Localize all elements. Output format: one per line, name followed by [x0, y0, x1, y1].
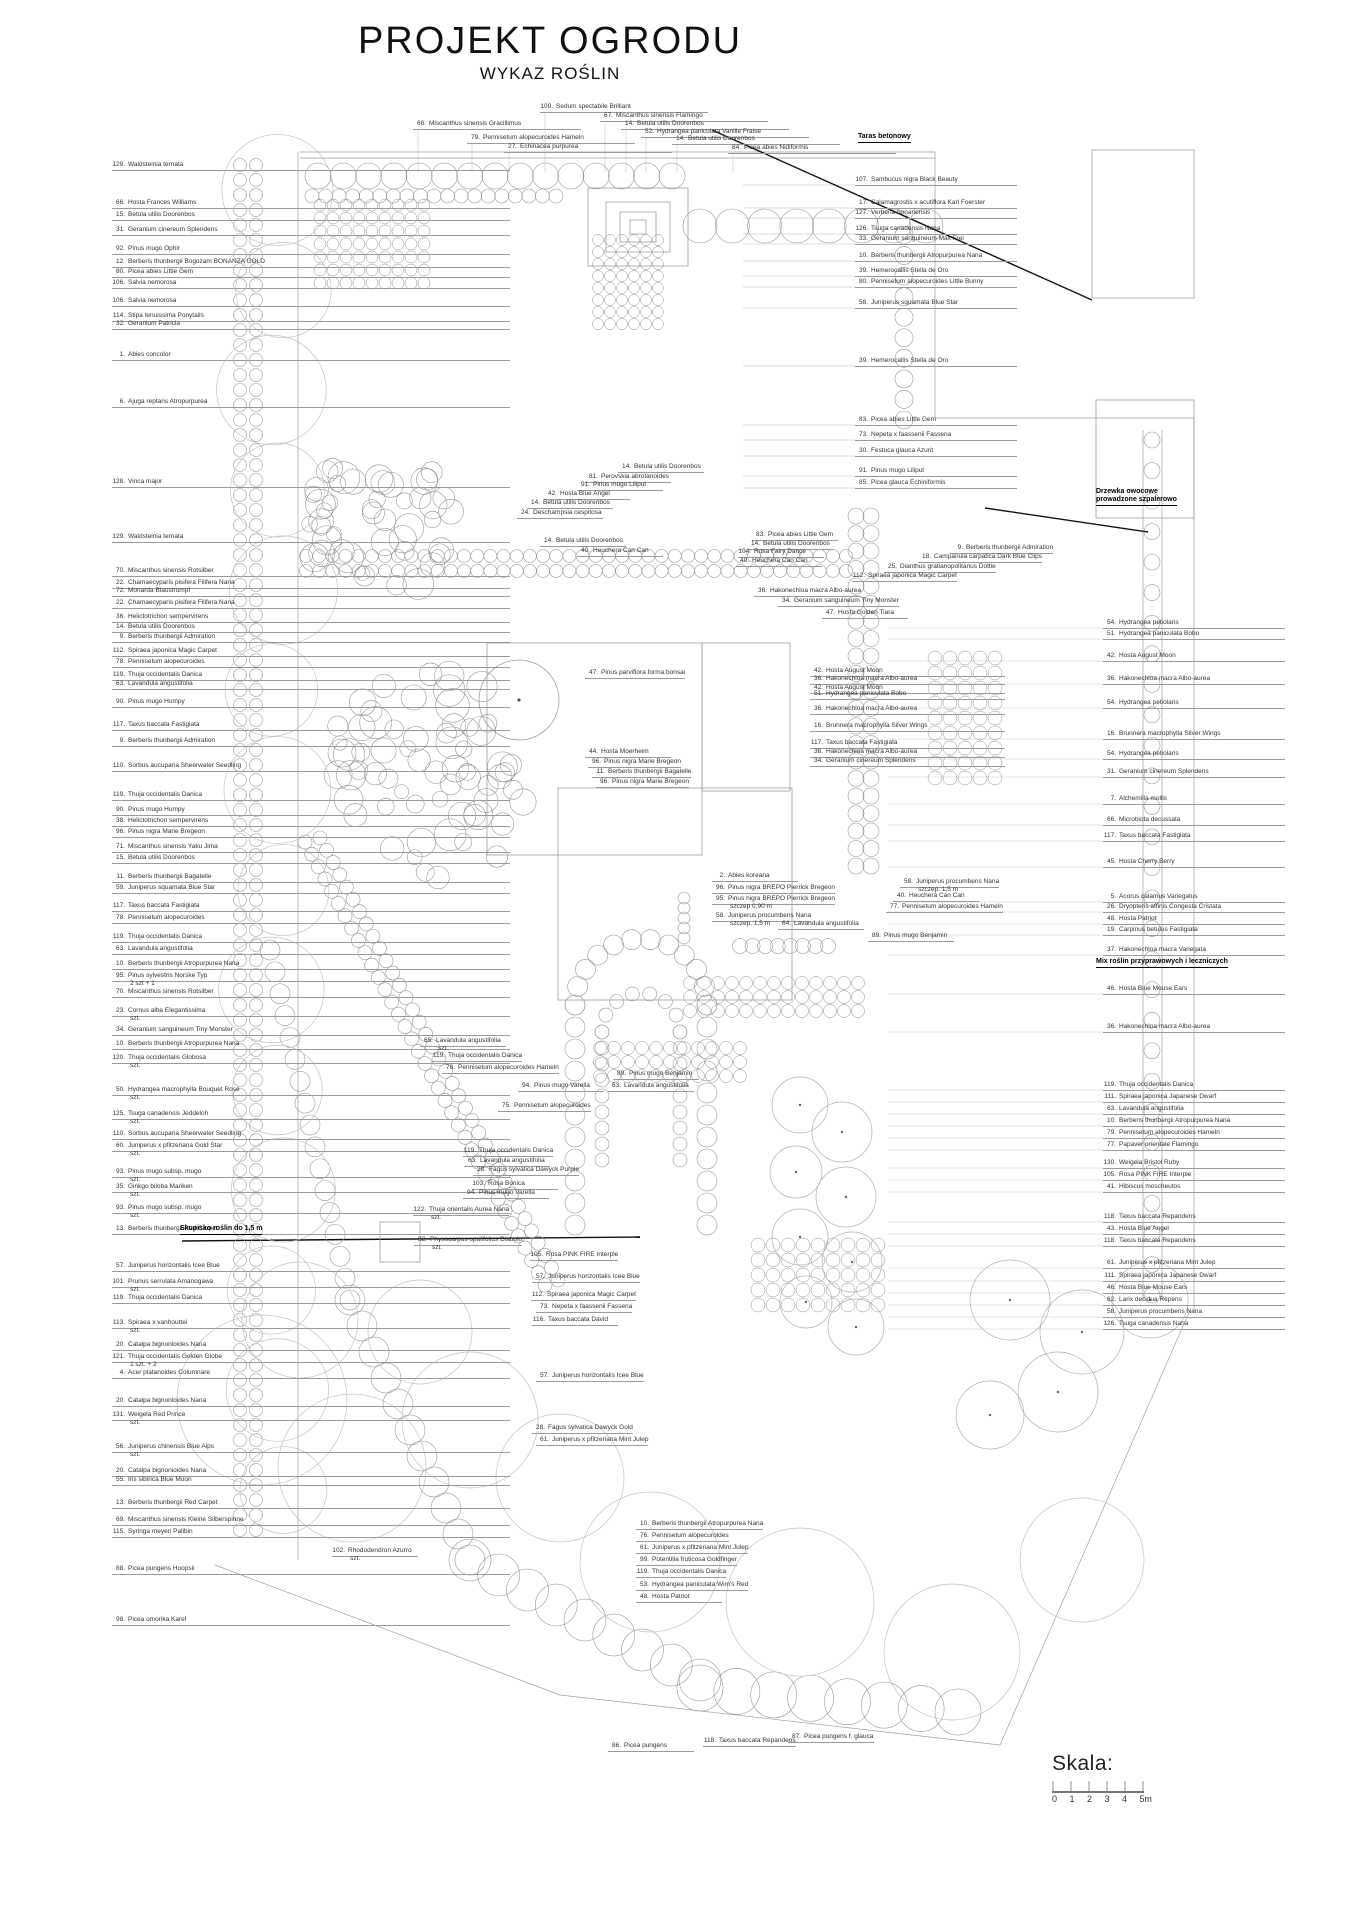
- plant-name: Pinus mugo Liliput: [593, 481, 646, 488]
- plant-number: 60.: [112, 1143, 125, 1150]
- plant-name: Juniperus procumbens Nana: [728, 912, 811, 919]
- plant-name: Hosta Patriot: [1119, 915, 1157, 922]
- plant-number: 14.: [112, 624, 125, 631]
- plant-number: 31.: [112, 227, 125, 234]
- plant-label: 66.Hosta Frances Williams: [112, 200, 510, 209]
- plant-number: 96.: [588, 759, 601, 766]
- plant-name: Taxus baccata Fastigiata: [128, 902, 200, 909]
- plant-qty-note: szczep. 1,5 m: [730, 921, 770, 928]
- plant-label: 40.Heuchera Can Can: [893, 893, 979, 902]
- plant-label: 11.Berberis thunbergii Bagatelle: [112, 874, 510, 883]
- plant-name: Hydrangea paniculata Vanille Fraise: [657, 128, 761, 135]
- plant-number: 36.: [810, 676, 823, 683]
- plant-label: 35.Ginkgo biloba Marikenszt.: [112, 1184, 510, 1193]
- plant-label: 36.Hakonechloa macra Albo-aurea: [810, 706, 1005, 715]
- plant-number: 85.: [855, 480, 868, 487]
- plant-label: 83.Picea abies Little Gem: [855, 417, 1017, 426]
- plant-name: Berberis thunbergii Admiration: [128, 633, 215, 640]
- plant-label: 20.Catalpa bignonioides Nana: [112, 1342, 510, 1351]
- plant-label: 85.Picea glauca Echiniformis: [855, 480, 1017, 489]
- plant-label: 122.Thuja orientalis Aurea Nanaszt.: [413, 1207, 509, 1216]
- plant-number: 66.: [1103, 817, 1116, 824]
- plant-name: Picea pungens Hoopsii: [128, 1565, 195, 1572]
- plant-label: 2.Abies koreana: [712, 873, 798, 882]
- plant-qty-note: szt.: [130, 1119, 140, 1126]
- plant-name: Perovskia abrotanoides: [601, 473, 669, 480]
- plant-name: Pinus mugo subsp. mugo: [128, 1204, 201, 1211]
- scale-tick: [1106, 1781, 1108, 1791]
- plant-qty-note: szt.: [130, 1420, 140, 1427]
- plant-number: 63.: [608, 1083, 621, 1090]
- plant-qty-note: 2 szt + 1: [130, 981, 155, 988]
- plant-name: Miscanthus sinensis Kleine Silberspinne: [128, 1516, 244, 1523]
- plant-number: 10.: [112, 961, 125, 968]
- plant-number: 79.: [467, 135, 480, 142]
- plant-label: 55.Iris sibirica Blue Moon: [112, 1477, 510, 1486]
- plant-number: 117.: [1103, 833, 1116, 840]
- plant-number: 41.: [1103, 1184, 1116, 1191]
- plant-name: Taxus baccata Fastigiata: [1119, 832, 1191, 839]
- plant-name: Miscanthus sinensis Rotsilber: [128, 567, 214, 574]
- plant-name: Festuca glauca Azurit: [871, 447, 933, 454]
- plant-label: 65.Lavandula angustifoliaszt.: [420, 1038, 506, 1047]
- plant-name: Fagus sylvatica Dawyck Gold: [548, 1424, 633, 1431]
- plant-label: 36.Helictotrichon sempervirens: [112, 614, 510, 623]
- plant-name: Hydrangea petiolaris: [1119, 750, 1179, 757]
- plant-number: 79.: [1103, 1130, 1116, 1137]
- plan-annotation: Drzewka owocowe prowadzone szpalerowo: [1096, 488, 1177, 506]
- plant-name: Spiraea japonica Magic Carpet: [547, 1291, 636, 1298]
- plant-name: Betula utilis Doorenbos: [763, 540, 830, 547]
- plant-name: Brunnera macrophylla Silver Wings: [1119, 730, 1221, 737]
- plant-label: 126.Tsuga canadensis Nana: [1103, 1321, 1285, 1330]
- plant-name: Juniperus x pfitzeriana Gold Star: [128, 1142, 222, 1149]
- plant-number: 36.: [810, 706, 823, 713]
- plant-number: 112.: [852, 573, 865, 580]
- plant-number: 103.: [472, 1181, 485, 1188]
- plant-number: 51.: [1103, 631, 1116, 638]
- plant-number: 88.: [112, 1566, 125, 1573]
- plant-name: Pinus nigra BREPO Pierrick Bregeon: [728, 884, 835, 891]
- plant-number: 125.: [112, 1111, 125, 1118]
- plant-name: Weigela Red Prince: [128, 1411, 185, 1418]
- plant-label: 80.Picea abies Little Gem: [112, 269, 510, 278]
- plant-label: 89.Pinus mugo Benjamin: [868, 933, 954, 942]
- plant-name: Salvia nemorosa: [128, 297, 176, 304]
- plant-label: 131.Weigela Red Princeszt.: [112, 1412, 510, 1421]
- plant-name: Hosta August Moon: [1119, 652, 1176, 659]
- plant-number: 9.: [112, 634, 125, 641]
- plant-number: 27.: [504, 144, 517, 151]
- plant-label: 14.Betula utilis Doorenbos: [540, 538, 626, 547]
- garden-plan-sheet: PROJEKT OGRODU WYKAZ ROŚLIN 129.Waldstei…: [0, 0, 1348, 1907]
- plant-number: 99.: [636, 1557, 649, 1564]
- plant-name: Hydrangea petiolaris: [1119, 699, 1179, 706]
- plant-label: 14.Betula utilis Doorenbos: [112, 624, 510, 633]
- plant-label: 76.Pennisetum alopecuroides: [636, 1533, 729, 1542]
- plant-name: Picea abies Little Gem: [128, 268, 193, 275]
- plant-label: 33.Geranium sanguineum Max Frei: [855, 236, 1017, 245]
- plant-name: Hakonechloa macra Variegata: [1119, 946, 1206, 953]
- plant-name: Betula utilis Doorenbos: [543, 499, 610, 506]
- plant-number: 57.: [536, 1373, 549, 1380]
- plant-number: 32.: [112, 321, 125, 328]
- plant-label: 112.Spiraea japonica Magic Carpet: [852, 573, 957, 582]
- plant-number: 36.: [1103, 676, 1116, 683]
- plant-name: Geranium sanguineum Tiny Monster: [794, 597, 899, 604]
- plant-label: 57.Juniperus horizontalis Icee Blue: [532, 1274, 640, 1283]
- plant-number: 56.: [112, 1444, 125, 1451]
- plant-number: 36.: [112, 614, 125, 621]
- plant-label: 9.Berberis thunbergii Admiration: [112, 738, 510, 747]
- plant-name: Hydrangea paniculata Wim's Red: [652, 1581, 748, 1588]
- scale-bar: Skala: 012345m: [1052, 1752, 1172, 1804]
- plant-name: Picea abies Little Gem: [871, 416, 936, 423]
- plant-number: 10.: [112, 1041, 125, 1048]
- plant-label: 10.Berberis thunbergii Atropurpurea Nana: [1103, 1118, 1285, 1127]
- plant-number: 80.: [112, 269, 125, 276]
- plant-label: 16.Brunnera macrophylla Silver Wings: [810, 723, 1005, 732]
- plant-name: Acorus calamus Variegatus: [1119, 893, 1198, 900]
- plant-name: Lavandula angustifolia: [128, 945, 193, 952]
- plant-name: Betula utilis Doorenbos: [128, 854, 195, 861]
- plant-label: 13.Berberis thunbergii Red Carpet: [112, 1500, 510, 1509]
- scale-tick-label: 5m: [1139, 1794, 1152, 1804]
- plant-number: 47.: [585, 670, 598, 677]
- plant-name: Pinus nigra Marie Bregeon: [128, 828, 205, 835]
- plant-name: Acer platanoides Columnare: [128, 1369, 210, 1376]
- plant-label: 82.Physocarpus opulifolius Diaboloszt.: [414, 1237, 522, 1246]
- plant-number: 105.: [530, 1252, 543, 1259]
- plant-number: 70.: [112, 989, 125, 996]
- plant-label: 77.Pennisetum alopecuroides Hameln: [886, 904, 1003, 913]
- plant-label: 112.Spiraea japonica Magic Carpet: [112, 648, 510, 657]
- plant-name: Berberis thunbergii Atropurpurea Nana: [871, 252, 982, 259]
- plant-name: Juniperus procumbens Nana: [1119, 1308, 1202, 1315]
- plant-number: 16.: [1103, 731, 1116, 738]
- plant-label: 119.Thuja occidentalis Danica: [112, 1295, 510, 1304]
- plant-number: 1.: [112, 352, 125, 359]
- plant-name: Campanula carpatica Dark Blue Clips: [934, 553, 1042, 560]
- plant-name: Taxus baccata Repandens: [1119, 1213, 1196, 1220]
- plant-name: Sedum spectabile Brilliant: [556, 103, 631, 110]
- plant-label: 111.Spiraea japonica Japanese Dwarf: [1103, 1273, 1285, 1282]
- plant-number: 101.: [112, 1279, 125, 1286]
- plant-label: 48.Hosta Patriot: [1103, 916, 1285, 925]
- plant-name: Thuja occidentalis Globosa: [128, 1054, 206, 1061]
- plant-number: 24.: [517, 510, 530, 517]
- plant-label: 127.Verbena bonariensis: [855, 210, 1017, 219]
- plant-name: Carpinus betulus Fastigiata: [1119, 926, 1198, 933]
- plant-name: Ginkgo biloba Mariken: [128, 1183, 193, 1190]
- plant-label: 1.Abies concolor: [112, 352, 510, 361]
- plant-label: 56.Juniperus chinensis Blue Alpsszt.: [112, 1444, 510, 1453]
- plant-label: 110.Sorbus aucuparia Sheerwater Seedling: [112, 1131, 510, 1140]
- plant-number: 119.: [112, 934, 125, 941]
- plant-number: 30.: [855, 448, 868, 455]
- plant-label: 118.Taxus baccata Repandens: [703, 1738, 796, 1747]
- plant-label: 24.Deschampsia cespitosa: [517, 510, 603, 519]
- plant-name: Pinus mugo Varella: [479, 1189, 535, 1196]
- plant-number: 25.: [884, 564, 897, 571]
- plant-qty-note: 1 szt. + 2: [130, 1362, 157, 1369]
- plant-label: 92.Pinus mugo Ophir: [112, 246, 510, 255]
- plant-name: Microbiota decussata: [1119, 816, 1180, 823]
- plant-name: Pinus mugo Benjamin: [884, 932, 947, 939]
- plant-name: Alchemilla mollis: [1119, 795, 1167, 802]
- plant-number: 86.: [608, 1743, 621, 1750]
- plant-label: 78.Pennisetum alopecuroides: [112, 659, 510, 668]
- plant-label: 48.Hosta Patriot: [636, 1594, 722, 1603]
- plant-number: 58.: [712, 913, 725, 920]
- plant-name: Berberis thunbergii Admiration: [966, 544, 1053, 551]
- plant-name: Juniperus chinensis Blue Alps: [128, 1443, 214, 1450]
- plant-name: Nepeta x faassenii Fassena: [871, 431, 951, 438]
- plant-number: 42.: [810, 668, 823, 675]
- plant-name: Geranium cinereum Splendens: [826, 757, 916, 764]
- plant-number: 40.: [736, 558, 749, 565]
- plant-number: 80.: [855, 279, 868, 286]
- plant-name: Berberis thunbergii Atropurpurea Nana: [652, 1520, 763, 1527]
- plant-number: 90.: [112, 699, 125, 706]
- plant-number: 63.: [1103, 1106, 1116, 1113]
- plant-name: Pennisetum alopecuroides Hameln: [483, 134, 584, 141]
- plant-label: 7.Alchemilla mollis: [1103, 796, 1285, 805]
- plant-label: 4.Acer platanoides Columnare: [112, 1370, 510, 1379]
- plant-name: Rosa PINK FIRE Interple: [1119, 1171, 1191, 1178]
- plant-number: 15.: [112, 212, 125, 219]
- plant-label: 87.Picea pungens f. glauca: [788, 1734, 874, 1743]
- plant-label: 5.Acorus calamus Variegatus: [1103, 894, 1285, 903]
- plant-number: 63.: [112, 681, 125, 688]
- plant-name: Betula utilis Doorenbos: [634, 463, 701, 470]
- plant-name: Spiraea x vanhouttei: [128, 1319, 187, 1326]
- plant-name: Thuja occidentalis Danica: [479, 1147, 553, 1154]
- plant-label: 77.Papaver orientale Flamingo: [1103, 1142, 1285, 1151]
- plant-name: Potentilla fruticosa Goldfinger: [652, 1556, 737, 1563]
- scale-tick: [1088, 1781, 1090, 1791]
- plant-number: 119.: [112, 672, 125, 679]
- plant-number: 110.: [112, 1131, 125, 1138]
- plant-name: Monarda Blaustrumpf: [128, 587, 190, 594]
- plant-number: 119.: [636, 1569, 649, 1576]
- plant-name: Stipa tenuissima Ponytails: [128, 312, 204, 319]
- plant-name: Syringa meyeri Palibin: [128, 1528, 193, 1535]
- plant-number: 112.: [112, 648, 125, 655]
- plant-name: Calamagrostis x acutiflora Karl Foerster: [871, 199, 985, 206]
- plant-label: 10.Berberis thunbergii Atropurpurea Nana: [855, 253, 1017, 262]
- plant-number: 54.: [1103, 620, 1116, 627]
- plant-number: 94.: [518, 1083, 531, 1090]
- plant-number: 48.: [1103, 916, 1116, 923]
- plant-name: Salvia nemorosa: [128, 279, 176, 286]
- plant-number: 13.: [112, 1500, 125, 1507]
- plant-label: 40.Heuchera Can Can: [577, 548, 663, 557]
- plant-name: Thuja occidentalis Danica: [652, 1568, 726, 1575]
- plant-number: 10.: [636, 1521, 649, 1528]
- plant-number: 34.: [810, 758, 823, 765]
- plant-name: Juniperus horizontalis Icee Blue: [548, 1273, 640, 1280]
- plant-name: Thuja occidentalis Danica: [128, 933, 202, 940]
- plant-name: Pennisetum alopecuroides: [128, 914, 205, 921]
- plant-number: 10.: [855, 253, 868, 260]
- plant-number: 35.: [112, 1184, 125, 1191]
- plant-label: 98.Picea omorika Karel: [112, 1617, 510, 1626]
- plant-number: 42.: [544, 491, 557, 498]
- plant-label: 22.Chamaecyparis pisifera Filifera Nana: [112, 600, 510, 609]
- plant-label: 63.Lavandula angustifolia: [1103, 1106, 1285, 1115]
- plant-qty-note: szt.: [130, 1287, 140, 1294]
- plant-number: 40.: [577, 548, 590, 555]
- plant-name: Spiraea japonica Japanese Dwarf: [1119, 1272, 1216, 1279]
- plant-label: 93.Pinus mugo subsp. mugoszt.: [112, 1169, 510, 1178]
- plant-name: Berberis thunbergii Atropurpurea Nana: [128, 960, 239, 967]
- plant-label: 119.Thuja occidentalis Danica: [463, 1148, 553, 1157]
- plant-number: 83.: [752, 532, 765, 539]
- plant-label: 130.Weigela Bristol Ruby: [1103, 1160, 1285, 1169]
- plant-label: 31.Geranium cinereum Splendens: [1103, 769, 1285, 778]
- plant-number: 61.: [1103, 1260, 1116, 1267]
- scale-tick-label: 4: [1122, 1794, 1127, 1804]
- plant-label: 54.Hydrangea petiolaris: [1103, 751, 1285, 760]
- plant-number: 58.: [1103, 1309, 1116, 1316]
- plant-label: 96.Pinus nigra Marie Bregeon: [596, 779, 689, 788]
- plant-label: 53.Hydrangea paniculata Wim's Red: [636, 1582, 748, 1591]
- plant-name: Pinus mugo Liliput: [871, 467, 924, 474]
- plant-number: 114.: [112, 313, 125, 320]
- plant-name: Catalpa bignonioides Nana: [128, 1397, 206, 1404]
- plant-name: Waldsteinia ternata: [128, 533, 183, 540]
- scale-numbers: 012345m: [1052, 1794, 1152, 1804]
- plant-name: Juniperus x pfitzeriana Mint Julep: [1119, 1259, 1215, 1266]
- plant-name: Pennisetum alopecuroides: [128, 658, 205, 665]
- plant-name: Waldsteinia ternata: [128, 161, 183, 168]
- plant-name: Deschampsia cespitosa: [533, 509, 602, 516]
- plant-number: 91.: [577, 482, 590, 489]
- plant-name: Berberis thunbergii Red Carpet: [128, 1499, 218, 1506]
- plant-label: 94.Pinus mugo Varella: [463, 1190, 549, 1199]
- plant-number: 22.: [112, 600, 125, 607]
- plant-number: 36.: [810, 749, 823, 756]
- plant-name: Pennisetum alopecuroides: [514, 1102, 591, 1109]
- plant-label: 51.Hydrangea paniculata Bobo: [810, 691, 1005, 700]
- plant-name: Pinus sylvestris Norske Typ: [128, 972, 207, 979]
- plant-name: Hosta Cherry Berry: [1119, 858, 1175, 865]
- page-title: PROJEKT OGRODU: [0, 20, 1100, 63]
- plant-name: Berberis thunbergii Bagatelle: [128, 873, 211, 880]
- plant-label: 119.Thuja occidentalis Danica: [112, 934, 510, 943]
- plant-number: 43.: [1103, 1226, 1116, 1233]
- plant-label: 32.Geranium Patricia: [112, 321, 510, 330]
- plant-number: 128.: [112, 479, 125, 486]
- plant-number: 78.: [442, 1065, 455, 1072]
- plant-name: Hydrangea paniculata Bobo: [1119, 630, 1199, 637]
- plant-name: Spiraea japonica Japanese Dwarf: [1119, 1093, 1216, 1100]
- plant-label: 47.Hosta Golden Tiara: [822, 610, 908, 619]
- plant-label: 118.Taxus baccata Repandens: [1103, 1214, 1285, 1223]
- plant-name: Geranium cinereum Splendens: [1119, 768, 1209, 775]
- plant-label: 31.Geranium cinereum Splendens: [112, 227, 510, 236]
- plant-qty-note: szt.: [130, 1095, 140, 1102]
- plant-number: 57.: [532, 1274, 545, 1281]
- plant-label: 44.Hosta Moerheim: [585, 749, 671, 758]
- plant-name: Dianthus gratianopolitanus Dottie: [900, 563, 996, 570]
- plant-label: 39.Hemerocallis Stella de Oro: [855, 268, 1017, 277]
- plant-label: 61.Juniperus x pfitzeriana Mint Julep: [636, 1545, 748, 1554]
- plant-number: 122.: [413, 1207, 426, 1214]
- scale-tick-label: 0: [1052, 1794, 1057, 1804]
- plant-label: 10.Berberis thunbergii Atropurpurea Nana: [636, 1521, 763, 1530]
- plant-label: 106.Salvia nemorosa: [112, 280, 510, 289]
- plant-label: 121.Thuja occidentalis Golden Globe1 szt…: [112, 1354, 510, 1363]
- plant-number: 45.: [1103, 859, 1116, 866]
- plant-number: 37.: [1103, 947, 1116, 954]
- plant-label: 57.Juniperus horizontalis Icee Blue: [536, 1373, 644, 1382]
- plant-qty-note: szt.: [350, 1556, 360, 1563]
- plant-label: 46.Hosta Blue Mouse Ears: [1103, 1285, 1285, 1294]
- plant-name: Cornus alba Elegantissima: [128, 1007, 205, 1014]
- plant-name: Pennisetum alopecuroides: [652, 1532, 729, 1539]
- plant-number: 91.: [855, 468, 868, 475]
- plant-label: 88.Picea pungens Hoopsii: [112, 1566, 510, 1575]
- plant-name: Betula utilis Doorenbos: [688, 135, 755, 142]
- plant-name: Spiraea japonica Magic Carpet: [128, 647, 217, 654]
- plant-number: 89.: [613, 1071, 626, 1078]
- plant-name: Picea pungens f. glauca: [804, 1733, 873, 1740]
- plant-name: Lavandula angustifolia: [624, 1082, 689, 1089]
- plant-label: 6.Ajuga reptans Atropurpurea: [112, 399, 510, 408]
- scale-tick-label: 3: [1104, 1794, 1109, 1804]
- plant-label: 95.Pinus nigra BREPO Pierrick Bregeonszc…: [712, 896, 835, 905]
- plant-label: 117.Taxus baccata Fastigiata: [112, 722, 510, 731]
- plant-number: 119.: [1103, 1082, 1116, 1089]
- plant-label: 57.Juniperus horizontalis Icee Blue: [112, 1263, 510, 1272]
- plant-name: Hosta Blue Angel: [560, 490, 610, 497]
- plant-number: 34.: [112, 1027, 125, 1034]
- plant-number: 94.: [463, 1190, 476, 1197]
- plant-number: 61.: [636, 1545, 649, 1552]
- plant-number: 95.: [112, 973, 125, 980]
- plant-name: Hakonechloa macra Albo-aurea: [826, 748, 917, 755]
- plant-label: 36.Hakonechloa macra Albo-aurea: [1103, 1024, 1285, 1033]
- plant-label: 58.Juniperus procumbens Nanaszczep. 1,5 …: [900, 879, 999, 888]
- plant-label: 27.Echinacea purpurea: [504, 144, 672, 153]
- plant-number: 17.: [855, 200, 868, 207]
- plant-number: 121.: [112, 1354, 125, 1361]
- plant-label: 59.Juniperus squamata Blue Star: [112, 885, 510, 894]
- scale-tick: [1124, 1781, 1126, 1791]
- plant-label: 78.Pennisetum alopecuroides Hameln: [442, 1065, 559, 1074]
- plant-number: 58.: [855, 300, 868, 307]
- plant-name: Hibiscus moscheutos: [1119, 1183, 1180, 1190]
- plant-name: Picea omorika Karel: [128, 1616, 186, 1623]
- plant-label: 119.Thuja occidentalis Danica: [112, 792, 510, 801]
- plant-number: 14.: [540, 538, 553, 545]
- plant-number: 70.: [112, 568, 125, 575]
- plant-label: 16.Brunnera macrophylla Silver Wings: [1103, 731, 1285, 740]
- plant-label: 14.Betula utilis Doorenbos: [527, 500, 613, 509]
- plant-name: Fagus sylvatica Dawyck Purple: [489, 1166, 579, 1173]
- plant-label: 69.Miscanthus sinensis Kleine Silberspin…: [112, 1517, 510, 1526]
- plant-number: 55.: [112, 1477, 125, 1484]
- plant-name: Ajuga reptans Atropurpurea: [128, 398, 208, 405]
- plant-qty-note: szt.: [130, 1151, 140, 1158]
- plant-number: 118.: [1103, 1214, 1116, 1221]
- plant-number: 18.: [918, 554, 931, 561]
- plant-number: 81.: [585, 474, 598, 481]
- plant-name: Pennisetum alopecuroides Little Bunny: [871, 278, 983, 285]
- plant-name: Thuja occidentalis Danica: [1119, 1081, 1193, 1088]
